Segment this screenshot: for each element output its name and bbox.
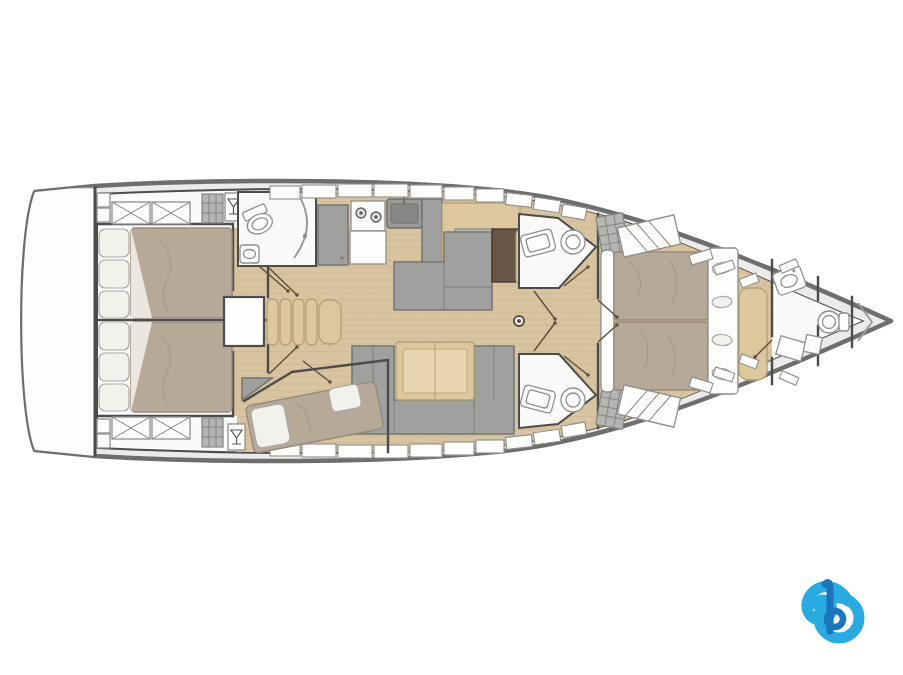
deck-hatch-aft-starboard bbox=[202, 418, 223, 447]
swim-platform bbox=[20, 188, 95, 456]
aft-cabin-port-bed bbox=[99, 228, 232, 318]
floorplan-svg: Sailing yacht interior layout floor plan… bbox=[0, 0, 903, 675]
toilet-icon bbox=[818, 311, 849, 333]
dining-table bbox=[396, 342, 474, 400]
yacht-floorplan-image: Sailing yacht interior layout floor plan… bbox=[0, 0, 903, 675]
stove-icon bbox=[351, 201, 385, 231]
toilet-icon bbox=[561, 388, 585, 412]
toilet-icon bbox=[561, 230, 585, 254]
washbasin-icon bbox=[240, 245, 259, 263]
mast-post bbox=[514, 316, 524, 326]
sink-icon bbox=[387, 195, 422, 228]
chart-table bbox=[492, 229, 518, 282]
aft-head-port bbox=[238, 192, 316, 266]
shower-drain-icon bbox=[303, 234, 307, 238]
companionway-stairs bbox=[267, 299, 341, 345]
logo-b-bowl bbox=[827, 611, 843, 627]
glass-rack-starboard bbox=[228, 424, 245, 450]
deck-hatch-aft-port bbox=[202, 194, 223, 223]
brand-b-logo bbox=[807, 583, 859, 638]
aft-cabin-starboard-bed bbox=[99, 322, 232, 412]
engine-compartment bbox=[224, 297, 264, 346]
